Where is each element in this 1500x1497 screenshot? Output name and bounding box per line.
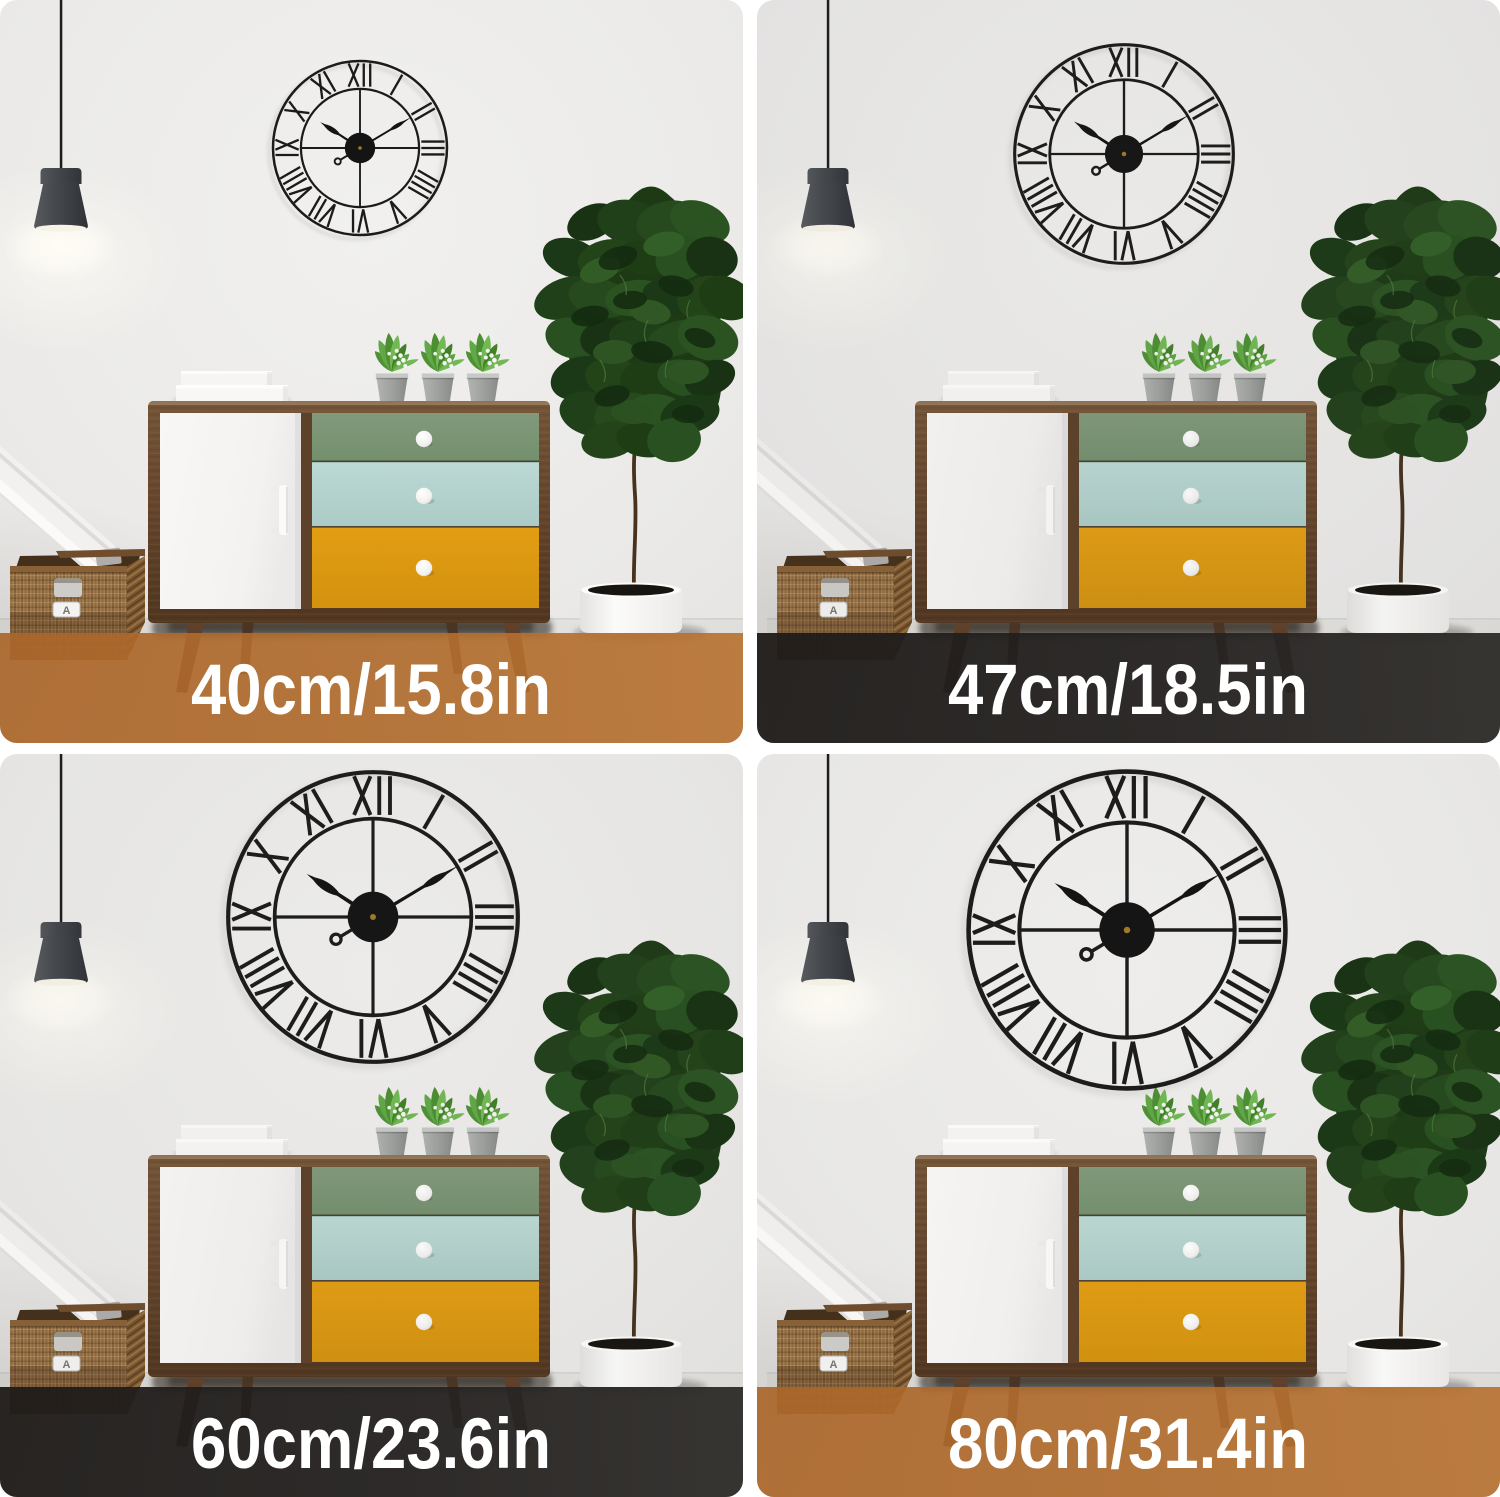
- svg-text:60cm/23.6in: 60cm/23.6in: [191, 1405, 551, 1484]
- svg-text:47cm/18.5in: 47cm/18.5in: [948, 651, 1308, 730]
- svg-text:40cm/15.8in: 40cm/15.8in: [191, 651, 551, 730]
- svg-text:80cm/31.4in: 80cm/31.4in: [948, 1405, 1308, 1484]
